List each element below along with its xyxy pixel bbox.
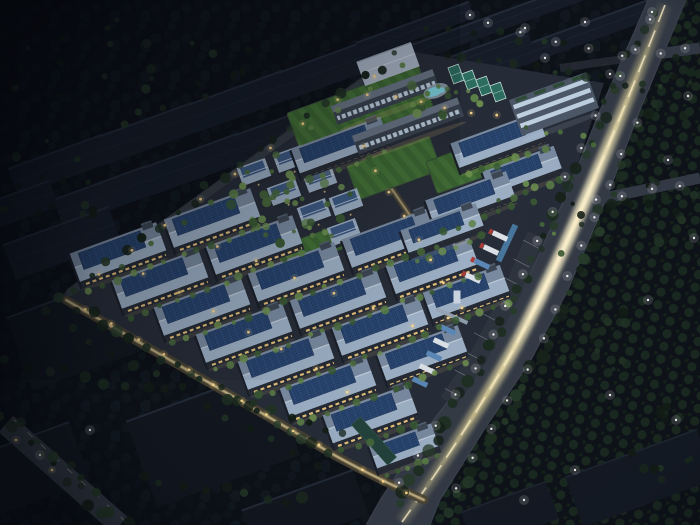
tree bbox=[602, 217, 608, 223]
tree bbox=[155, 480, 162, 487]
tree bbox=[415, 259, 419, 263]
path-light bbox=[382, 480, 385, 483]
path-light bbox=[315, 367, 318, 370]
tree bbox=[310, 233, 315, 238]
path-light bbox=[387, 191, 390, 194]
tree bbox=[477, 58, 482, 63]
tree bbox=[203, 402, 211, 410]
tree bbox=[515, 37, 523, 45]
tree bbox=[273, 421, 281, 429]
tree bbox=[250, 222, 254, 226]
tree bbox=[540, 222, 545, 227]
tree bbox=[179, 482, 187, 490]
tree bbox=[637, 164, 642, 169]
tree bbox=[669, 195, 673, 199]
tree bbox=[141, 84, 150, 93]
street-light bbox=[667, 159, 669, 161]
tree bbox=[97, 319, 109, 331]
path-light bbox=[199, 198, 202, 201]
tree bbox=[496, 209, 501, 214]
path-light bbox=[405, 491, 408, 494]
tree bbox=[454, 90, 458, 94]
tree bbox=[649, 464, 659, 474]
tree bbox=[239, 230, 246, 237]
tree bbox=[367, 312, 373, 318]
tree bbox=[661, 192, 669, 200]
tree bbox=[262, 307, 270, 315]
street-light bbox=[609, 184, 611, 186]
tree bbox=[393, 385, 400, 392]
tree bbox=[69, 324, 77, 332]
tree bbox=[247, 425, 254, 432]
tree bbox=[579, 222, 585, 228]
tree bbox=[518, 384, 526, 392]
tree bbox=[590, 338, 596, 344]
tree bbox=[600, 112, 612, 124]
tree bbox=[494, 163, 501, 170]
tree bbox=[686, 68, 695, 77]
tree bbox=[114, 18, 119, 23]
path-light bbox=[301, 122, 304, 125]
tree bbox=[310, 290, 316, 296]
path-light bbox=[372, 307, 375, 310]
path-light bbox=[361, 468, 364, 471]
tree bbox=[591, 237, 598, 244]
tree bbox=[286, 126, 292, 132]
tree bbox=[60, 178, 67, 185]
path-light bbox=[188, 368, 191, 371]
tree bbox=[649, 176, 655, 182]
tree bbox=[222, 482, 233, 493]
tree bbox=[245, 169, 250, 174]
street-light bbox=[554, 308, 556, 310]
tree bbox=[536, 350, 549, 363]
tree bbox=[98, 378, 109, 389]
tree bbox=[89, 306, 100, 317]
tree bbox=[675, 194, 681, 200]
tree bbox=[308, 125, 314, 131]
street-light bbox=[524, 27, 526, 29]
tree bbox=[128, 315, 135, 322]
tree bbox=[565, 68, 572, 75]
tree bbox=[79, 211, 86, 218]
tree bbox=[396, 499, 404, 507]
tree bbox=[46, 367, 55, 376]
path-light bbox=[233, 173, 236, 176]
path-light bbox=[395, 95, 398, 98]
tree bbox=[160, 384, 169, 393]
path-light bbox=[293, 276, 296, 279]
tree bbox=[12, 152, 21, 161]
tree bbox=[654, 180, 660, 186]
tree bbox=[672, 208, 681, 217]
tree bbox=[461, 375, 474, 388]
street-light bbox=[619, 75, 621, 77]
path-light bbox=[374, 169, 377, 172]
tree bbox=[284, 189, 290, 195]
tree bbox=[226, 200, 236, 210]
tree bbox=[639, 81, 646, 88]
tree bbox=[422, 444, 435, 457]
tree bbox=[222, 394, 234, 406]
path-light bbox=[247, 331, 250, 334]
tree bbox=[128, 360, 139, 371]
tree bbox=[640, 88, 645, 93]
tree bbox=[292, 200, 298, 206]
street-light bbox=[594, 114, 596, 116]
tree bbox=[308, 332, 313, 337]
tree bbox=[70, 287, 77, 294]
tree bbox=[82, 500, 94, 512]
street-light bbox=[398, 481, 400, 483]
street-light bbox=[593, 216, 595, 218]
tree bbox=[456, 53, 466, 63]
street-light bbox=[609, 73, 611, 75]
tree bbox=[410, 421, 418, 429]
path-light bbox=[420, 100, 423, 103]
path-light bbox=[429, 258, 432, 261]
tree bbox=[209, 49, 218, 58]
tree bbox=[268, 435, 275, 442]
tree bbox=[268, 261, 275, 268]
tree bbox=[552, 232, 556, 236]
path-light bbox=[15, 439, 18, 442]
tree bbox=[322, 284, 327, 289]
tree bbox=[6, 421, 18, 433]
street-light bbox=[522, 273, 524, 275]
tree bbox=[670, 73, 677, 80]
street-light bbox=[523, 499, 525, 501]
tree bbox=[0, 355, 9, 364]
tree bbox=[362, 354, 368, 360]
tree bbox=[121, 120, 129, 128]
tree bbox=[244, 314, 252, 322]
tree bbox=[417, 248, 425, 256]
tree bbox=[286, 343, 291, 348]
tree bbox=[570, 202, 574, 206]
tree bbox=[356, 443, 363, 450]
tree bbox=[470, 94, 478, 102]
tree bbox=[448, 398, 458, 408]
tree bbox=[175, 298, 180, 303]
tree bbox=[263, 232, 268, 237]
tree bbox=[507, 202, 515, 210]
tree bbox=[45, 139, 49, 143]
tree bbox=[109, 351, 115, 357]
tree bbox=[121, 382, 129, 390]
tree bbox=[48, 202, 55, 209]
tree bbox=[386, 259, 394, 267]
tree bbox=[56, 58, 64, 66]
path-light bbox=[98, 273, 101, 276]
tree bbox=[286, 170, 294, 178]
tree bbox=[183, 335, 189, 341]
street-light bbox=[595, 198, 597, 200]
tree bbox=[640, 25, 649, 34]
tree bbox=[350, 360, 356, 366]
path-light bbox=[280, 348, 283, 351]
tree bbox=[401, 253, 409, 261]
tree bbox=[569, 353, 576, 360]
tree bbox=[142, 39, 151, 48]
tree bbox=[609, 236, 614, 241]
tree bbox=[378, 66, 387, 75]
tree bbox=[218, 384, 225, 391]
street-light bbox=[564, 176, 566, 178]
tree bbox=[272, 151, 279, 158]
tree bbox=[370, 393, 378, 401]
street-light bbox=[89, 429, 91, 431]
tree bbox=[234, 272, 243, 281]
tree bbox=[104, 25, 110, 31]
tree bbox=[62, 477, 71, 486]
tree bbox=[79, 371, 91, 383]
tree bbox=[202, 93, 209, 100]
tree bbox=[48, 451, 59, 462]
path-light bbox=[346, 391, 349, 394]
street-light bbox=[693, 237, 695, 239]
tree bbox=[160, 105, 166, 111]
street-light bbox=[675, 419, 677, 421]
tree bbox=[524, 125, 528, 129]
tree bbox=[381, 306, 390, 315]
tree bbox=[453, 245, 458, 250]
street-light bbox=[492, 333, 494, 335]
tree bbox=[546, 181, 555, 190]
tree bbox=[307, 226, 312, 231]
tree bbox=[617, 161, 626, 170]
tree bbox=[636, 139, 644, 147]
path-light bbox=[130, 249, 133, 252]
street-light bbox=[544, 57, 546, 59]
tree bbox=[445, 53, 451, 59]
tree bbox=[81, 201, 90, 210]
path-light bbox=[162, 353, 165, 356]
tree bbox=[320, 328, 325, 333]
tree bbox=[254, 408, 260, 414]
tree bbox=[289, 449, 296, 456]
tree bbox=[542, 145, 550, 153]
tree bbox=[349, 319, 355, 325]
tree bbox=[321, 99, 329, 107]
tree bbox=[119, 264, 125, 270]
tree bbox=[85, 179, 91, 185]
tree bbox=[405, 466, 410, 471]
tree bbox=[60, 365, 68, 373]
tree bbox=[240, 489, 248, 497]
tree bbox=[147, 263, 153, 269]
tree bbox=[530, 198, 537, 205]
tree bbox=[175, 361, 181, 367]
tree bbox=[653, 104, 657, 108]
tree bbox=[594, 226, 604, 236]
path-light bbox=[269, 147, 272, 150]
tree bbox=[403, 474, 416, 487]
tree bbox=[627, 201, 634, 208]
tree bbox=[481, 213, 488, 220]
tree bbox=[604, 206, 612, 214]
tree bbox=[89, 273, 95, 279]
tree bbox=[477, 231, 485, 239]
tree bbox=[295, 292, 303, 300]
tree bbox=[282, 257, 288, 263]
tree bbox=[439, 227, 447, 235]
street-light bbox=[471, 457, 473, 459]
tree bbox=[470, 30, 477, 37]
tree bbox=[422, 458, 429, 465]
path-light bbox=[84, 308, 87, 311]
tree bbox=[137, 233, 146, 242]
tree bbox=[182, 251, 187, 256]
tree bbox=[619, 357, 626, 364]
tree bbox=[353, 398, 361, 406]
path-light bbox=[366, 93, 369, 96]
tree bbox=[469, 220, 477, 228]
tree bbox=[524, 151, 531, 158]
tree bbox=[438, 247, 446, 255]
tree bbox=[412, 109, 421, 118]
street-light bbox=[474, 367, 476, 369]
tree bbox=[410, 102, 416, 108]
tree bbox=[56, 93, 61, 98]
tree bbox=[89, 211, 96, 218]
tree bbox=[213, 367, 217, 371]
tree bbox=[250, 399, 257, 406]
street-light bbox=[687, 95, 689, 97]
tree bbox=[509, 60, 517, 68]
tree bbox=[507, 405, 518, 416]
tree bbox=[77, 482, 84, 489]
tree bbox=[447, 365, 453, 371]
tree bbox=[686, 83, 690, 87]
street-light bbox=[634, 48, 636, 50]
tree bbox=[336, 167, 342, 173]
tree bbox=[368, 86, 373, 91]
tree bbox=[679, 111, 689, 121]
scene-canvas bbox=[0, 0, 700, 525]
tree bbox=[434, 245, 440, 251]
tree bbox=[329, 233, 334, 238]
tree bbox=[286, 181, 294, 189]
tree bbox=[478, 166, 485, 173]
tree bbox=[372, 264, 379, 271]
tree bbox=[620, 318, 630, 328]
tree bbox=[262, 198, 271, 207]
tree bbox=[258, 146, 264, 152]
tree bbox=[250, 267, 256, 273]
tree bbox=[544, 344, 552, 352]
tree bbox=[432, 370, 438, 376]
street-light bbox=[574, 469, 576, 471]
tree bbox=[626, 148, 634, 156]
tree bbox=[621, 371, 629, 379]
tree bbox=[229, 189, 238, 198]
tree bbox=[609, 45, 617, 53]
path-light bbox=[362, 145, 365, 148]
street-light bbox=[679, 185, 681, 187]
street-light bbox=[620, 153, 622, 155]
path-light bbox=[470, 112, 473, 115]
tree bbox=[74, 156, 80, 162]
tree bbox=[572, 278, 583, 289]
path-light bbox=[332, 292, 335, 295]
tree bbox=[296, 492, 308, 504]
tree bbox=[320, 179, 329, 188]
tree bbox=[165, 45, 169, 49]
tree bbox=[678, 37, 683, 42]
tree bbox=[279, 297, 287, 305]
tree bbox=[501, 418, 508, 425]
tree bbox=[322, 427, 328, 433]
tree bbox=[544, 131, 548, 135]
tree bbox=[533, 62, 541, 70]
tree bbox=[382, 149, 387, 154]
tree bbox=[456, 225, 462, 231]
tree bbox=[445, 86, 451, 92]
tree bbox=[555, 192, 566, 203]
tree bbox=[339, 405, 345, 411]
street-light bbox=[435, 425, 437, 427]
tree bbox=[339, 429, 347, 437]
tree bbox=[149, 76, 154, 81]
tree bbox=[130, 269, 137, 276]
tree bbox=[313, 462, 322, 471]
tree bbox=[139, 472, 149, 482]
tree bbox=[324, 449, 333, 458]
path-light bbox=[216, 245, 219, 248]
tree bbox=[148, 241, 154, 247]
tree bbox=[396, 344, 401, 349]
tree bbox=[407, 81, 417, 91]
tree bbox=[538, 246, 544, 252]
tree bbox=[28, 440, 34, 446]
path-light bbox=[137, 338, 140, 341]
tree bbox=[575, 363, 582, 370]
tree bbox=[618, 308, 628, 318]
tree bbox=[101, 257, 110, 266]
tree bbox=[240, 71, 246, 77]
path-light bbox=[142, 272, 145, 275]
path-light bbox=[495, 114, 498, 117]
tree bbox=[337, 279, 344, 286]
street-light bbox=[504, 305, 506, 307]
tree bbox=[99, 283, 105, 289]
tree bbox=[113, 276, 122, 285]
path-light bbox=[411, 325, 414, 328]
tree bbox=[400, 62, 406, 68]
tree bbox=[356, 273, 363, 280]
tree bbox=[12, 84, 19, 91]
tree bbox=[300, 196, 305, 201]
tree bbox=[464, 313, 471, 320]
tree bbox=[475, 308, 483, 316]
tree bbox=[522, 189, 528, 195]
tree bbox=[682, 412, 687, 417]
tree bbox=[591, 142, 597, 148]
tree bbox=[232, 320, 237, 325]
path-light bbox=[178, 291, 181, 294]
tree bbox=[553, 70, 558, 75]
tree bbox=[103, 507, 114, 518]
path-light bbox=[255, 260, 258, 263]
tree bbox=[662, 403, 671, 412]
tree bbox=[258, 215, 266, 223]
tree bbox=[347, 191, 353, 197]
tree bbox=[466, 89, 470, 93]
tree bbox=[328, 367, 336, 375]
tree bbox=[510, 308, 517, 315]
tree bbox=[157, 303, 162, 308]
